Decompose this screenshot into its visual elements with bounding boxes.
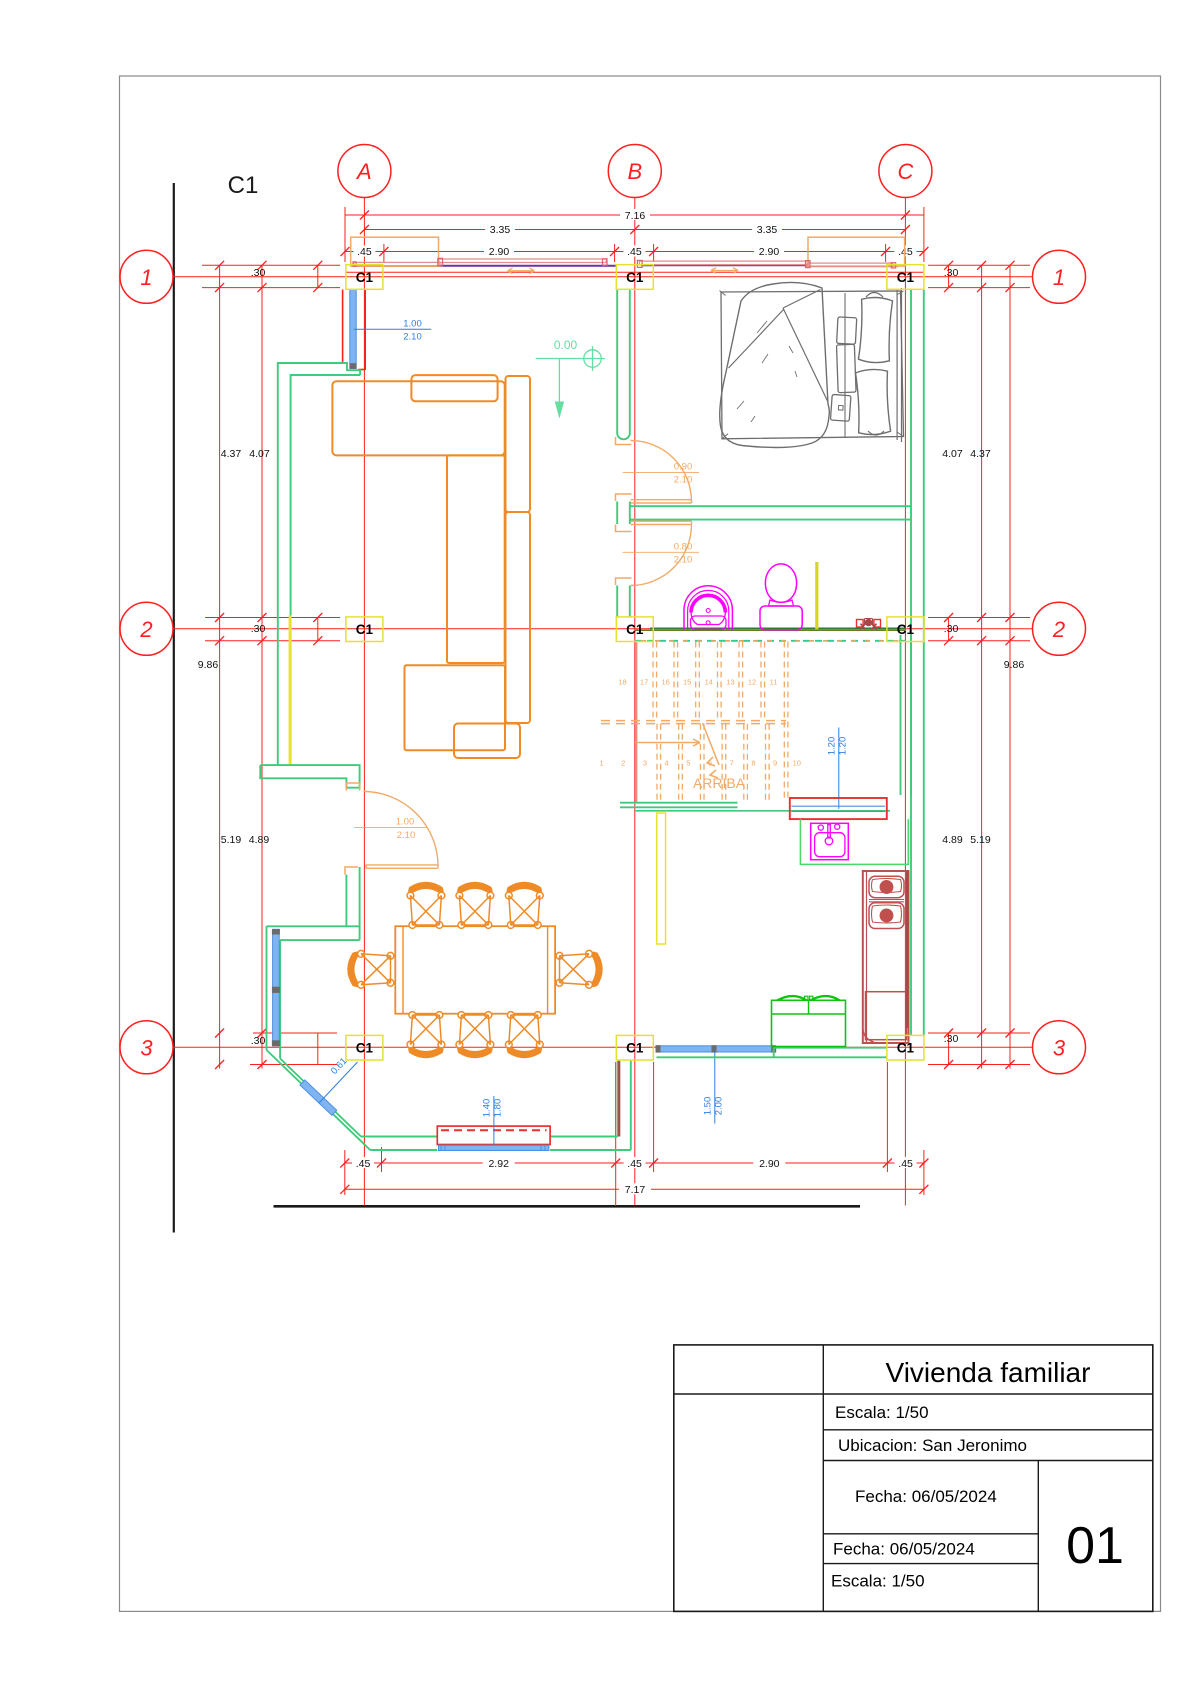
svg-text:C1: C1 — [897, 1041, 915, 1056]
svg-text:.45: .45 — [627, 1158, 642, 1170]
svg-text:Fecha: 06/05/2024: Fecha: 06/05/2024 — [855, 1487, 997, 1506]
svg-text:C1: C1 — [626, 270, 644, 285]
svg-text:0.00: 0.00 — [554, 338, 578, 352]
svg-text:C1: C1 — [626, 622, 644, 637]
svg-text:4.07: 4.07 — [249, 448, 270, 460]
svg-text:7.17: 7.17 — [625, 1184, 646, 1196]
svg-text:1: 1 — [140, 265, 152, 290]
svg-text:14: 14 — [705, 677, 713, 686]
svg-text:2.00: 2.00 — [713, 1097, 724, 1116]
svg-text:2.90: 2.90 — [759, 246, 780, 258]
svg-text:11: 11 — [770, 677, 778, 686]
svg-text:.45: .45 — [356, 1158, 371, 1170]
svg-text:.45: .45 — [627, 246, 642, 258]
svg-text:.30: .30 — [251, 1035, 266, 1047]
svg-text:1: 1 — [1053, 265, 1065, 290]
svg-text:9: 9 — [773, 758, 777, 767]
svg-text:1.20: 1.20 — [837, 737, 848, 756]
svg-text:1: 1 — [599, 758, 603, 767]
svg-text:C1: C1 — [897, 270, 915, 285]
svg-text:7: 7 — [730, 758, 734, 767]
svg-text:13: 13 — [726, 677, 734, 686]
svg-text:1.40: 1.40 — [482, 1099, 493, 1118]
svg-text:C1: C1 — [356, 270, 374, 285]
svg-text:Escala: 1/50: Escala: 1/50 — [835, 1403, 929, 1422]
svg-text:.30: .30 — [944, 1033, 959, 1045]
svg-text:1.80: 1.80 — [493, 1099, 504, 1118]
svg-text:Fecha: 06/05/2024: Fecha: 06/05/2024 — [833, 1540, 975, 1559]
svg-text:2.10: 2.10 — [403, 332, 422, 343]
svg-text:1.00: 1.00 — [396, 817, 415, 828]
svg-text:C1: C1 — [626, 1041, 644, 1056]
svg-text:C1: C1 — [228, 172, 259, 199]
svg-text:ARRIBA: ARRIBA — [693, 775, 746, 791]
svg-text:Vivienda familiar: Vivienda familiar — [886, 1357, 1091, 1388]
svg-text:.30: .30 — [944, 267, 959, 279]
svg-text:2.10: 2.10 — [674, 555, 693, 566]
svg-text:2: 2 — [1052, 617, 1065, 642]
svg-text:0.80: 0.80 — [674, 541, 693, 552]
svg-text:1.50: 1.50 — [702, 1097, 713, 1116]
svg-text:5.19: 5.19 — [970, 834, 991, 846]
svg-text:10: 10 — [793, 758, 801, 767]
svg-text:C1: C1 — [897, 622, 915, 637]
svg-text:9.86: 9.86 — [1004, 659, 1025, 671]
svg-text:1.20: 1.20 — [826, 737, 837, 756]
svg-text:9.86: 9.86 — [198, 659, 219, 671]
svg-text:4: 4 — [665, 758, 669, 767]
svg-text:16: 16 — [662, 677, 670, 686]
svg-text:17: 17 — [640, 677, 648, 686]
svg-text:3: 3 — [1053, 1035, 1066, 1060]
svg-text:3.35: 3.35 — [757, 224, 778, 236]
svg-text:4.89: 4.89 — [942, 834, 963, 846]
svg-text:Ubicacion: San Jeronimo: Ubicacion: San Jeronimo — [838, 1436, 1027, 1455]
svg-text:B: B — [627, 159, 642, 184]
svg-text:01: 01 — [1066, 1517, 1124, 1575]
svg-text:5: 5 — [686, 758, 690, 767]
svg-text:A: A — [355, 159, 372, 184]
svg-text:2.90: 2.90 — [489, 246, 510, 258]
svg-text:4.37: 4.37 — [970, 448, 991, 460]
svg-text:.30: .30 — [251, 267, 266, 279]
svg-text:.45: .45 — [357, 246, 372, 258]
svg-text:.30: .30 — [944, 623, 959, 635]
svg-text:0.90: 0.90 — [674, 461, 693, 472]
svg-text:2: 2 — [139, 617, 152, 642]
svg-text:5.19: 5.19 — [221, 834, 242, 846]
svg-text:C1: C1 — [356, 622, 374, 637]
svg-text:12: 12 — [748, 677, 756, 686]
svg-text:2: 2 — [621, 758, 625, 767]
svg-text:.30: .30 — [251, 623, 266, 635]
svg-text:8: 8 — [751, 758, 755, 767]
svg-text:2.10: 2.10 — [674, 475, 693, 486]
svg-text:Escala: 1/50: Escala: 1/50 — [831, 1572, 925, 1591]
svg-text:18: 18 — [618, 677, 626, 686]
svg-text:4.89: 4.89 — [249, 834, 270, 846]
svg-text:2.90: 2.90 — [759, 1158, 780, 1170]
svg-text:C: C — [897, 159, 913, 184]
svg-text:.45: .45 — [898, 1158, 913, 1170]
svg-text:3: 3 — [643, 758, 647, 767]
svg-text:4.07: 4.07 — [942, 448, 963, 460]
svg-text:.45: .45 — [898, 246, 913, 258]
svg-text:3: 3 — [140, 1035, 153, 1060]
svg-text:2.92: 2.92 — [488, 1158, 509, 1170]
svg-text:3.35: 3.35 — [490, 224, 511, 236]
svg-text:15: 15 — [683, 677, 691, 686]
svg-text:C1: C1 — [356, 1041, 374, 1056]
svg-text:4.37: 4.37 — [221, 448, 242, 460]
svg-text:1.00: 1.00 — [403, 318, 422, 329]
svg-text:7.16: 7.16 — [625, 210, 646, 222]
svg-text:2.10: 2.10 — [397, 830, 416, 841]
